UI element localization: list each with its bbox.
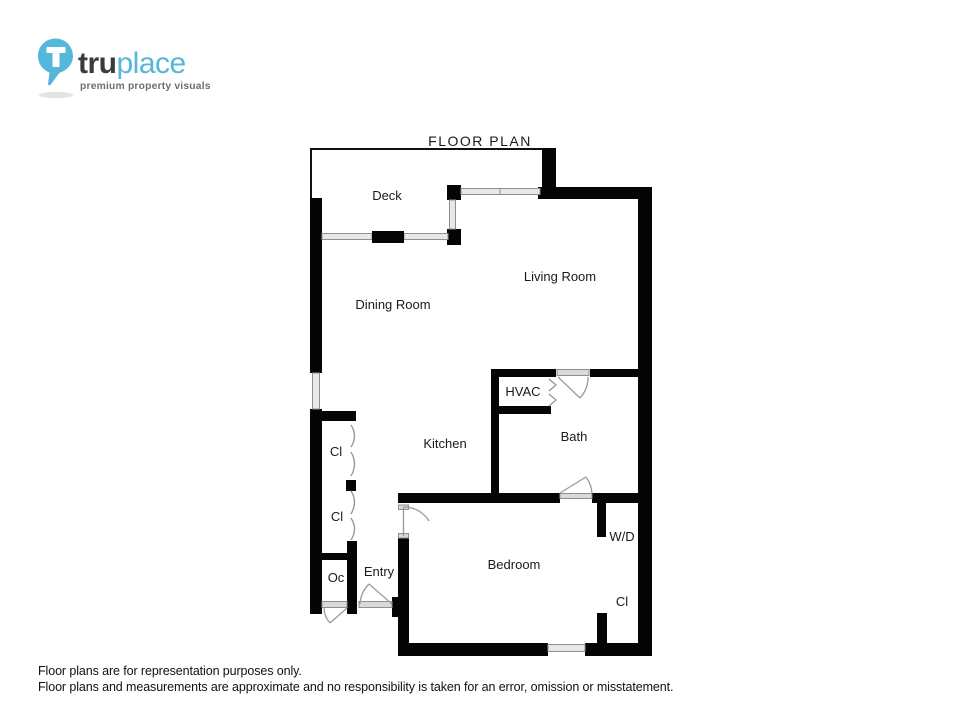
page-title: FLOOR PLAN <box>428 133 532 149</box>
sliding-door-panel <box>372 231 404 243</box>
room-label-closet-bedroom: Cl <box>616 594 628 609</box>
room-label-bath: Bath <box>561 429 588 444</box>
room-label-hvac: HVAC <box>505 384 540 399</box>
room-label-closet-lower: Cl <box>331 509 343 524</box>
disclaimer: Floor plans are for representation purpo… <box>38 664 673 695</box>
sliding-door-right <box>404 234 448 240</box>
room-label-living-room: Living Room <box>524 269 596 284</box>
room-label-washer-dryer: W/D <box>609 529 634 544</box>
room-label-bedroom: Bedroom <box>488 557 541 572</box>
room-labels: Deck Living Room Dining Room HVAC Kitche… <box>328 188 635 609</box>
room-label-entry: Entry <box>364 564 395 579</box>
door-bedroom <box>399 505 430 538</box>
floor-plan-walls <box>310 148 652 656</box>
room-label-closet-upper: Cl <box>330 444 342 459</box>
window-bedroom <box>548 645 585 652</box>
door-bath-lower <box>560 477 592 499</box>
deck-rail-side <box>450 200 456 229</box>
disclaimer-line-1: Floor plans are for representation purpo… <box>38 664 673 680</box>
door-oc-closet <box>322 602 347 624</box>
floor-plan: FLOOR PLAN <box>0 0 960 720</box>
door-bath-upper <box>557 370 589 399</box>
window-left-wall <box>313 373 320 409</box>
room-label-kitchen: Kitchen <box>423 436 466 451</box>
disclaimer-line-2: Floor plans and measurements are approxi… <box>38 680 673 696</box>
door-hvac-bifold <box>549 379 556 406</box>
page: truplace premium property visuals FLOOR … <box>0 0 960 720</box>
room-label-oc: Oc <box>328 570 345 585</box>
room-label-dining-room: Dining Room <box>355 297 430 312</box>
door-entry <box>359 584 392 608</box>
sliding-door-left <box>322 234 372 240</box>
room-label-deck: Deck <box>372 188 402 203</box>
